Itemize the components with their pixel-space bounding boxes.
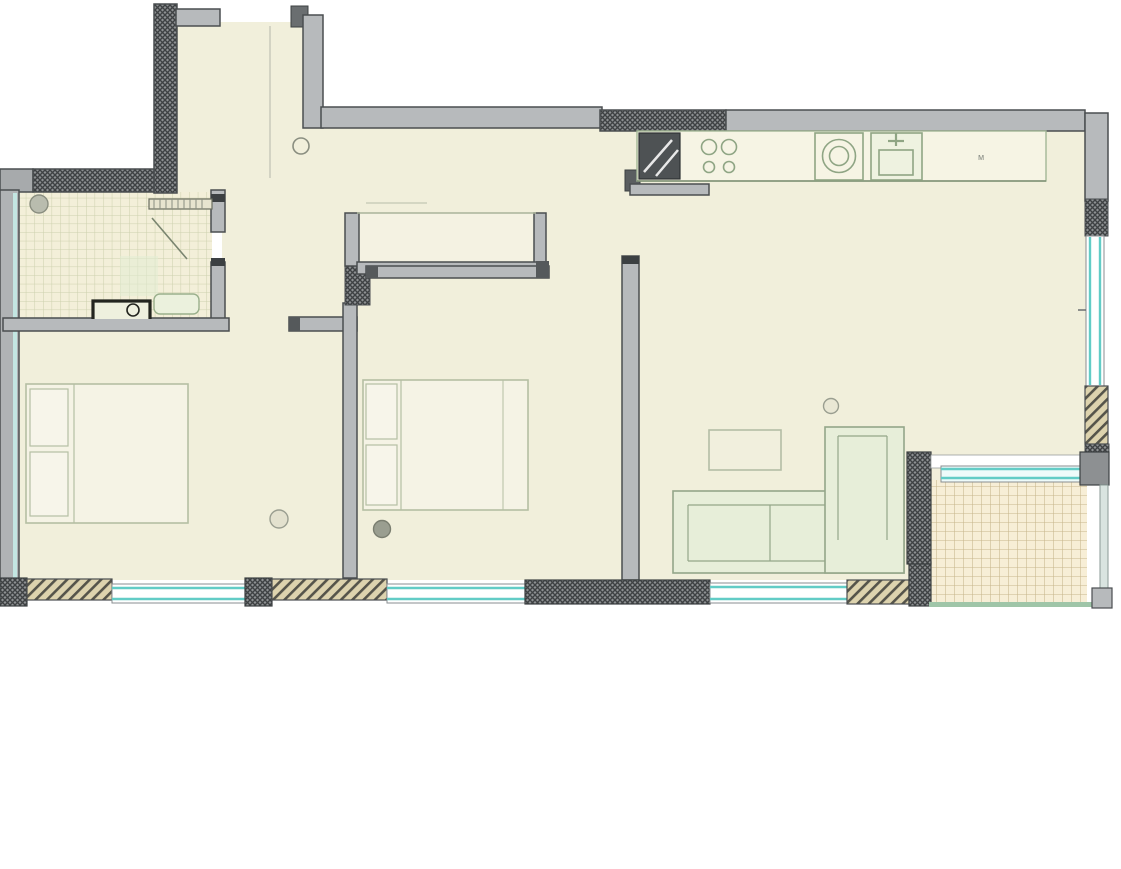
svg-text:м: м	[978, 152, 984, 162]
